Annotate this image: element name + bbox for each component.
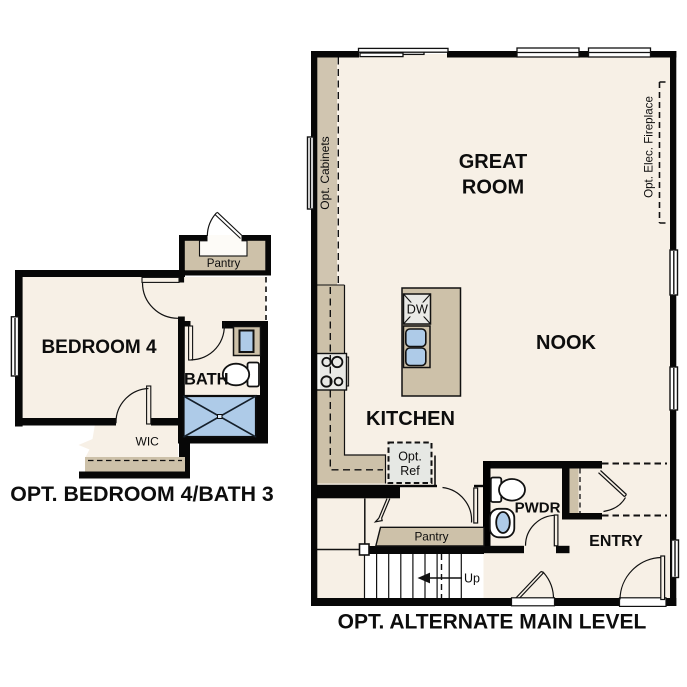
svg-text:Ref: Ref: [400, 464, 420, 478]
svg-text:BEDROOM 4: BEDROOM 4: [41, 337, 157, 358]
svg-text:Opt. Cabinets: Opt. Cabinets: [318, 136, 332, 209]
svg-text:Opt.: Opt.: [398, 450, 422, 464]
svg-text:ENTRY: ENTRY: [589, 533, 643, 550]
svg-text:PWDR: PWDR: [515, 500, 561, 517]
svg-text:NOOK: NOOK: [536, 332, 597, 354]
svg-text:ROOM: ROOM: [462, 177, 524, 199]
svg-text:Up: Up: [464, 572, 480, 586]
svg-text:DW: DW: [407, 302, 429, 317]
svg-text:Opt. Elec. Fireplace: Opt. Elec. Fireplace: [643, 96, 656, 198]
svg-text:OPT. BEDROOM 4/BATH 3: OPT. BEDROOM 4/BATH 3: [10, 482, 274, 506]
svg-text:GREAT: GREAT: [459, 151, 528, 173]
svg-text:OPT. ALTERNATE MAIN LEVEL: OPT. ALTERNATE MAIN LEVEL: [338, 611, 647, 634]
svg-text:KITCHEN: KITCHEN: [366, 408, 455, 430]
svg-text:WIC: WIC: [136, 435, 160, 449]
svg-text:Pantry: Pantry: [414, 530, 448, 544]
svg-text:BATH: BATH: [184, 371, 229, 389]
svg-text:Pantry: Pantry: [207, 257, 241, 270]
